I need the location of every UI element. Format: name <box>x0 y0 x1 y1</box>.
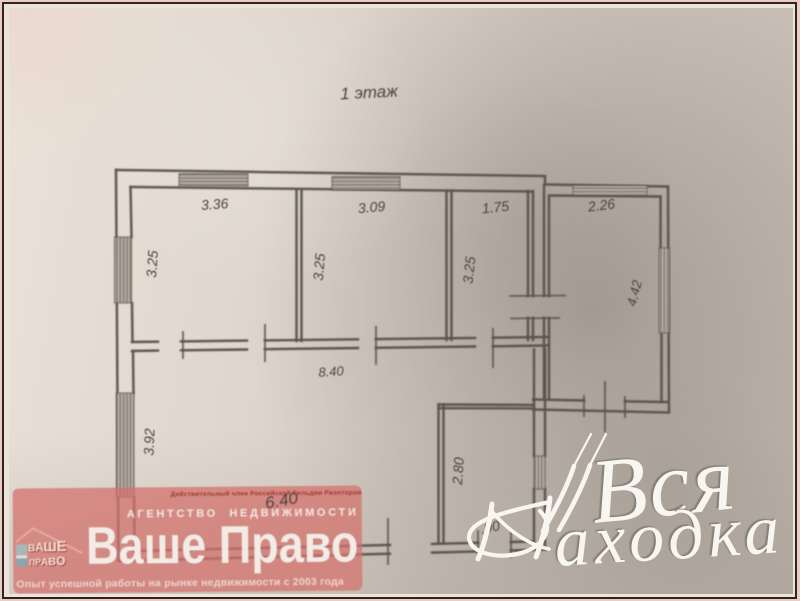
svg-text:аходка: аходка <box>552 491 786 582</box>
